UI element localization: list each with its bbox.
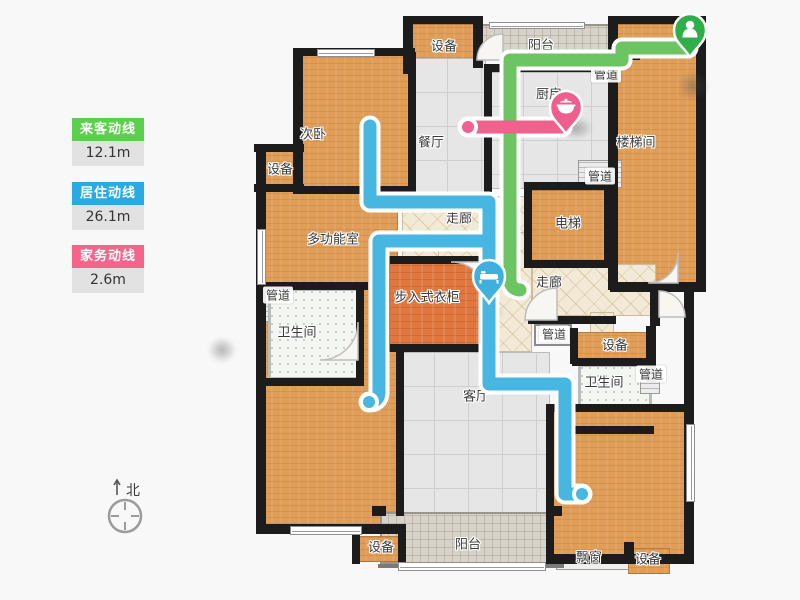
living-stop-pin[interactable] (473, 260, 505, 303)
living-endpoint (576, 488, 588, 500)
guest-route-casing (510, 48, 688, 290)
living-branch-endpoint (363, 396, 375, 408)
route-lines-layer (0, 0, 800, 600)
floorplan-page: { "legend": { "items": [ {"label": "来客动线… (0, 0, 800, 600)
door-arc-balcony (477, 34, 503, 60)
chore-endpoint (462, 121, 474, 133)
guest-route[interactable] (510, 48, 688, 290)
route-casings (369, 48, 688, 494)
door-arc-bath-left (320, 322, 358, 360)
door-arc-stairwell (648, 253, 678, 283)
living-pin-body (473, 260, 505, 303)
door-arc-entry (659, 291, 685, 317)
